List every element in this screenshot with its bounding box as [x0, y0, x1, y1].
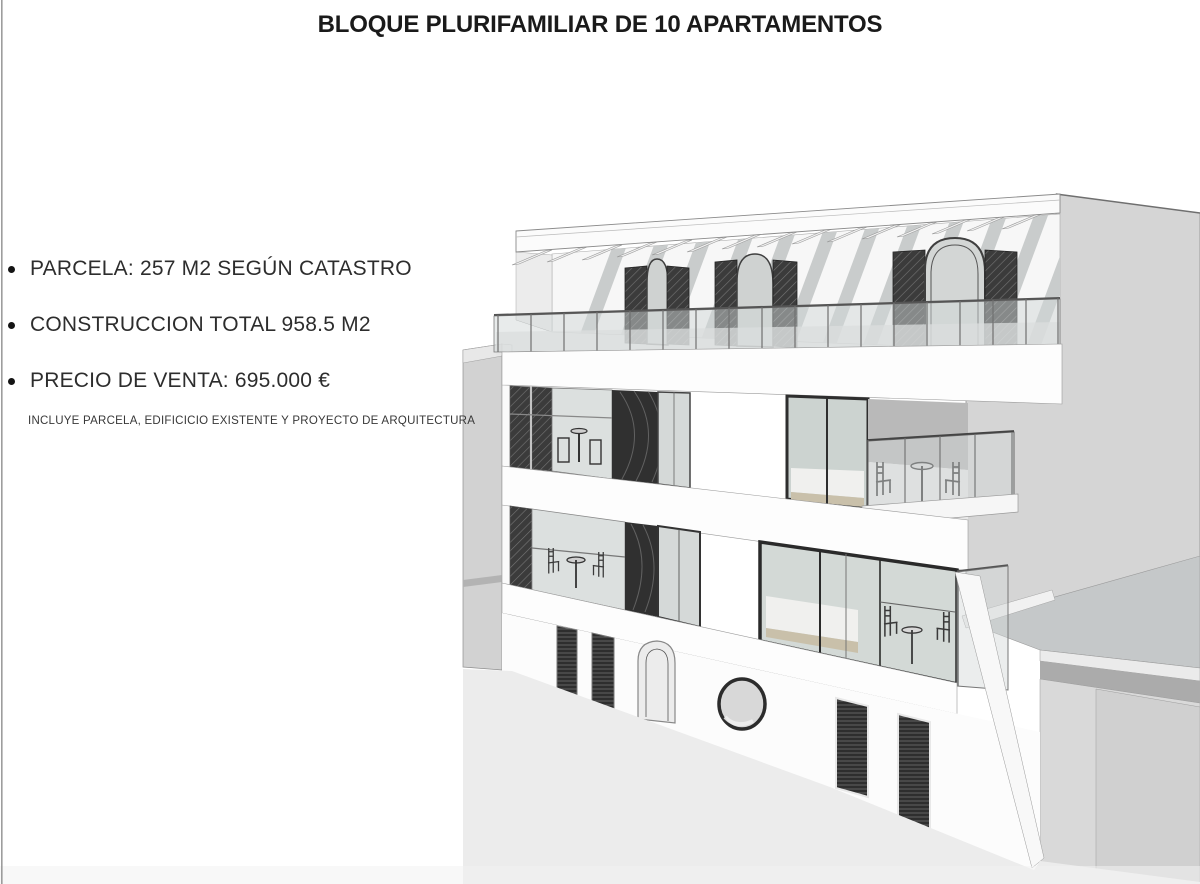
- bullet-dot: [8, 322, 15, 329]
- page-title: BLOQUE PLURIFAMILIAR DE 10 APARTAMENTOS: [0, 11, 1200, 39]
- construccion-text: CONSTRUCCION TOTAL 958.5 M2: [30, 313, 371, 337]
- disclaimer-note: INCLUYE PARCELA, EDIFICICIO EXISTENTE Y …: [28, 415, 475, 427]
- property-details-list: PARCELA: 257 M2 SEGÚN CATASTRO CONSTRUCC…: [8, 257, 412, 425]
- building-render-illustration: [0, 0, 1200, 884]
- list-item-construccion: CONSTRUCCION TOTAL 958.5 M2: [8, 313, 412, 337]
- list-item-precio: PRECIO DE VENTA: 695.000 €: [8, 369, 412, 393]
- list-item-parcela: PARCELA: 257 M2 SEGÚN CATASTRO: [8, 257, 412, 281]
- bullet-dot: [8, 378, 15, 385]
- left-neighbor-building: [463, 344, 502, 670]
- presentation-slide: BLOQUE PLURIFAMILIAR DE 10 APARTAMENTOS …: [0, 0, 1200, 884]
- bullet-dot: [8, 266, 15, 273]
- page-border-line: [1, 0, 3, 884]
- precio-text: PRECIO DE VENTA: 695.000 €: [30, 369, 330, 393]
- parcela-text: PARCELA: 257 M2 SEGÚN CATASTRO: [30, 257, 412, 281]
